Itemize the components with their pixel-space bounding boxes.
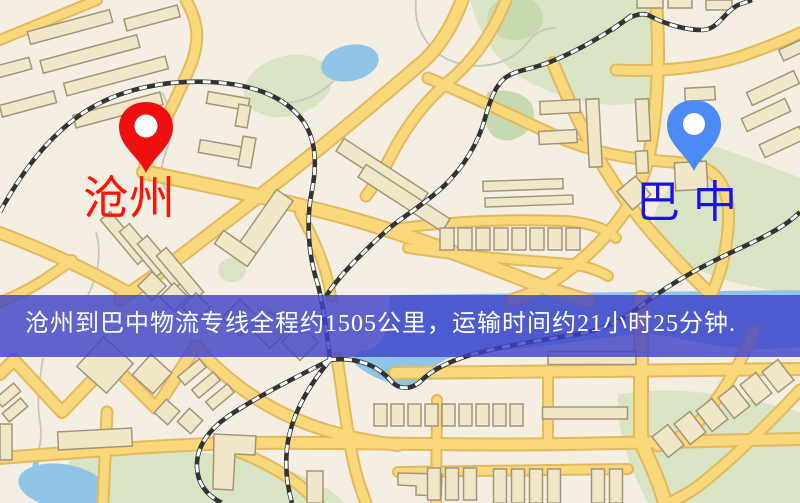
- origin-pin-hole: [135, 115, 158, 138]
- map-canvas[interactable]: [0, 0, 800, 503]
- route-info-banner: 沧州到巴中物流专线全程约1505公里，运输时间约21小时25分钟.: [0, 295, 800, 357]
- route-info-text: 沧州到巴中物流专线全程约1505公里，运输时间约21小时25分钟.: [25, 311, 736, 337]
- destination-pin-hole: [683, 113, 705, 135]
- logistics-route-map: 沧州 巴中 沧州到巴中物流专线全程约1505公里，运输时间约21小时25分钟.: [0, 0, 800, 503]
- origin-label: 沧州: [83, 176, 175, 222]
- destination-label: 巴中: [636, 181, 750, 225]
